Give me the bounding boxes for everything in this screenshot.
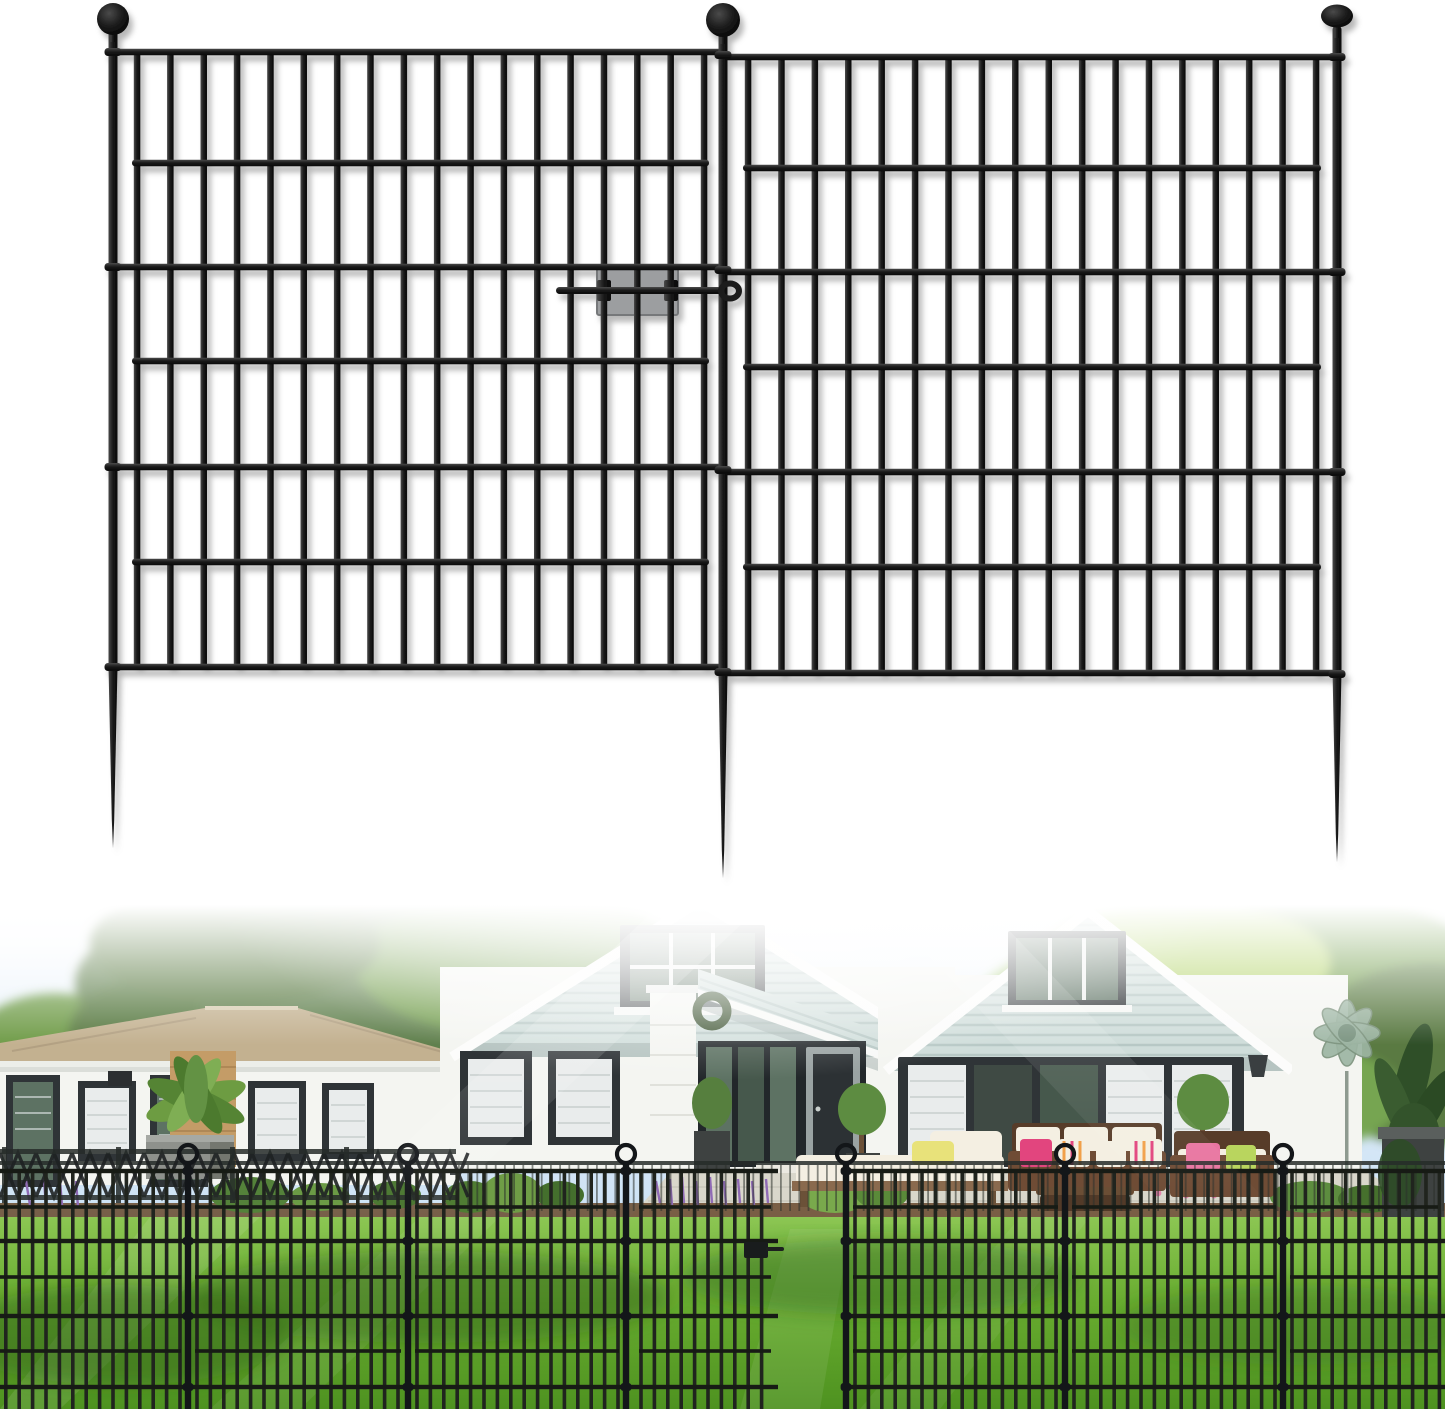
fence-rail: [723, 469, 1337, 476]
fence-rail-inner: [743, 364, 1321, 371]
fence-rail: [723, 269, 1337, 276]
post-collar: [1329, 268, 1346, 276]
post-collar: [621, 1167, 632, 1175]
lattice-post: [116, 1147, 121, 1203]
ball-finial-icon: [1321, 5, 1353, 28]
fence-rail: [0, 1385, 778, 1389]
fence-rail-inner: [1290, 1275, 1438, 1279]
post-rod: [1280, 1161, 1286, 1409]
post-rod: [843, 1161, 849, 1409]
fence-rail: [846, 1385, 1445, 1389]
fence-rail-inner: [132, 358, 709, 365]
post-collar: [1278, 1383, 1289, 1391]
post-collar: [183, 1312, 194, 1320]
fence-rail: [846, 1314, 1445, 1318]
lifestyle-photo-svg: [0, 905, 1445, 1409]
fence-rail: [846, 1239, 1445, 1243]
post-collar: [105, 263, 122, 271]
fence-rail: [113, 49, 723, 56]
post-collar: [841, 1237, 852, 1245]
fence-rail-inner: [853, 1349, 1058, 1353]
fence-rail: [0, 1239, 778, 1243]
baluster: [780, 1165, 782, 1211]
ball-finial-icon: [97, 3, 129, 35]
lattice-top-rail: [0, 1149, 456, 1154]
fence-rail-inner: [132, 559, 709, 566]
fence-rail-inner: [1290, 1349, 1438, 1353]
fence-rail-inner: [639, 1275, 771, 1279]
baluster: [826, 1165, 828, 1211]
post-collar: [1278, 1237, 1289, 1245]
fence-rail: [0, 1314, 778, 1318]
fence-rail-inner: [195, 1349, 401, 1353]
post-collar: [403, 1237, 414, 1245]
door-handle: [816, 1107, 821, 1112]
baluster: [817, 1165, 819, 1211]
post-rod: [623, 1161, 629, 1409]
latch-rod: [556, 287, 724, 294]
post-rod: [109, 30, 118, 674]
fence-rail-inner: [415, 1349, 619, 1353]
post-collar: [1278, 1167, 1289, 1175]
post-collar: [403, 1383, 414, 1391]
post-collar: [105, 463, 122, 471]
fence-rail-inner: [743, 564, 1321, 571]
post-rod: [185, 1161, 191, 1409]
fence-rail-inner: [415, 1205, 619, 1209]
post-collar: [841, 1167, 852, 1175]
house-number-plaque: [108, 1071, 132, 1086]
top-white-fade: [0, 905, 1445, 1045]
post-collar: [1329, 53, 1346, 61]
post-collar: [715, 466, 732, 474]
fence-rail-inner: [132, 160, 709, 167]
post-rod: [719, 32, 728, 680]
fence-rail-inner: [0, 1205, 181, 1209]
fence-rail-inner: [853, 1275, 1058, 1279]
baluster: [798, 1165, 800, 1211]
product-render-section: [0, 0, 1445, 905]
fence-rail-inner: [639, 1205, 771, 1209]
post-collar: [183, 1167, 194, 1175]
fence-rail-inner: [0, 1349, 181, 1353]
lattice-post: [230, 1147, 235, 1203]
baluster: [808, 1165, 810, 1211]
post-collar: [1060, 1167, 1071, 1175]
post-collar: [841, 1312, 852, 1320]
fence-rail-inner: [639, 1349, 771, 1353]
fence-rail-inner: [1290, 1205, 1438, 1209]
post-collar: [715, 668, 732, 676]
product-listing-image: { "meta": { "image_kind": "e-commerce pr…: [0, 0, 1445, 1409]
fence-rail-inner: [743, 165, 1321, 172]
post-collar: [1060, 1312, 1071, 1320]
baluster: [835, 1165, 837, 1211]
post-collar: [105, 48, 122, 56]
fence-rail: [113, 664, 723, 671]
lifestyle-photo-section: [0, 905, 1445, 1409]
fence-rail: [113, 264, 723, 271]
post-collar: [621, 1383, 632, 1391]
post-collar: [621, 1237, 632, 1245]
fence-bar: [1438, 1171, 1442, 1409]
fence-rail-inner: [195, 1275, 401, 1279]
fence-render-svg: [0, 0, 1445, 905]
post-collar: [183, 1383, 194, 1391]
fence-rail: [113, 464, 723, 471]
baluster: [789, 1165, 791, 1211]
post-collar: [403, 1312, 414, 1320]
post-collar: [715, 51, 732, 59]
gate-latch-rod: [766, 1247, 784, 1251]
post-collar: [1060, 1237, 1071, 1245]
ball-finial-icon: [706, 3, 740, 37]
post-collar: [1329, 468, 1346, 476]
post-rod: [1062, 1161, 1068, 1409]
post-collar: [1060, 1383, 1071, 1391]
post-collar: [105, 663, 122, 671]
post-collar: [1278, 1312, 1289, 1320]
fence-rail-inner: [853, 1205, 1058, 1209]
fence-rail-inner: [0, 1275, 181, 1279]
fence-rail-inner: [1072, 1349, 1276, 1353]
fence-rail: [723, 54, 1337, 61]
gate-latch: [744, 1242, 768, 1258]
fence-rail-inner: [415, 1275, 619, 1279]
post-collar: [841, 1383, 852, 1391]
fence-rail: [723, 670, 1337, 677]
post-collar: [621, 1312, 632, 1320]
post-rod: [1333, 26, 1342, 678]
post-collar: [1329, 670, 1346, 678]
fence-rail-inner: [1072, 1275, 1276, 1279]
post-collar: [715, 266, 732, 274]
post-collar: [183, 1237, 194, 1245]
